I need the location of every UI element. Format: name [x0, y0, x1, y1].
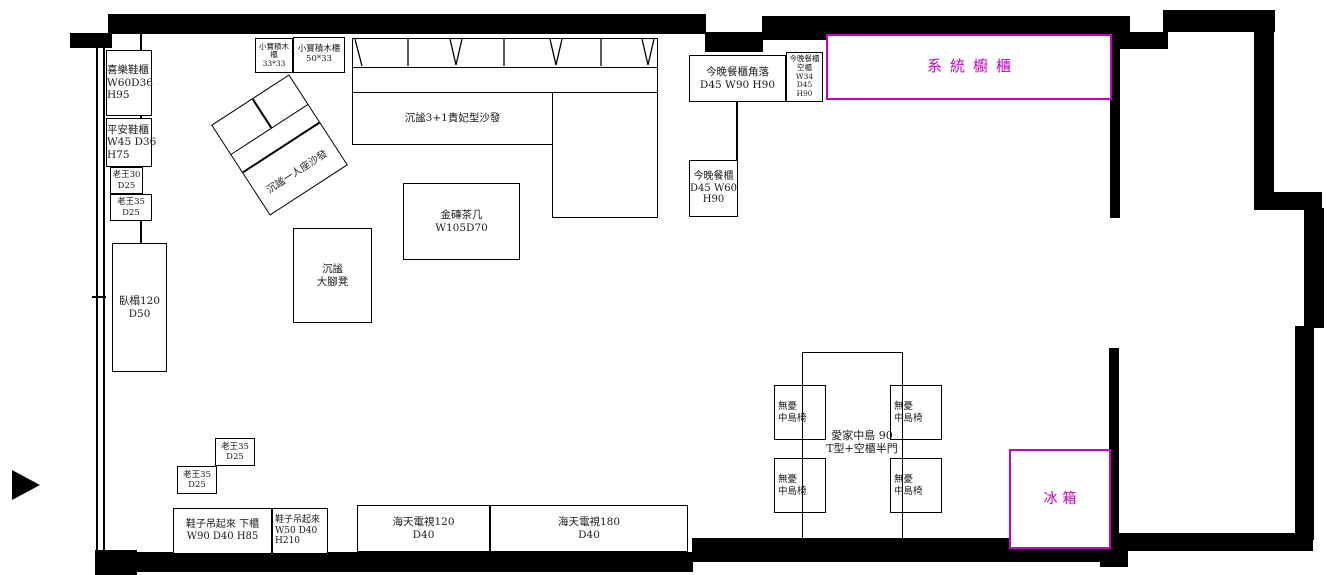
wall-bottom-right-room [1117, 533, 1313, 551]
furniture-pingan-shoe-cabinet: 平安鞋櫃 W45 D36 H75 [106, 118, 152, 167]
pointer-triangle-icon [12, 470, 40, 500]
furniture-dinner-cabinet-empty: 今晚餐櫃 空櫃 W34 D45 H90 [786, 52, 823, 102]
furniture-tv-120: 海天電視120 D40 [357, 505, 490, 552]
furniture-label: 小寶積木櫃 50*33 [298, 45, 341, 65]
furniture-label: 無憂 中島椅 [778, 401, 807, 423]
furniture-label: 無憂 中島椅 [894, 401, 923, 423]
furniture-label: 系統櫥櫃 [919, 58, 1019, 76]
furniture-single-sofa: 沉謐一人座沙發 [211, 74, 348, 215]
furniture-label: 沉謐3+1貴妃型沙發 [405, 112, 501, 124]
furniture-label: 今晚餐櫃角落 D45 W90 H90 [700, 66, 775, 91]
furniture-island-chair: 無憂 中島椅 [774, 458, 826, 513]
left-wall-tick [92, 296, 106, 298]
wall-top-a [108, 14, 706, 34]
furniture-label: 海天電視120 D40 [392, 516, 454, 541]
wall-right-upper [1254, 30, 1274, 193]
furniture-label: 無憂 中島椅 [778, 474, 807, 496]
furniture-main-sofa-back [352, 38, 658, 68]
furniture-dinner-cabinet-corner: 今晚餐櫃角落 D45 W90 H90 [689, 55, 786, 102]
furniture-label: 老王35 D25 [221, 442, 249, 462]
wall-top-left-step [70, 33, 112, 48]
wall-top-right-high [1163, 10, 1275, 32]
furniture-xile-shoe-cabinet: 喜樂鞋櫃 W60D36 H95 [106, 50, 152, 116]
furniture-label: 今晚餐櫃 D45 W60 H90 [690, 171, 737, 206]
furniture-daybed-120: 臥榻120 D50 [112, 243, 167, 372]
left-wall-line-inner [103, 33, 105, 553]
furniture-label: 沉謐 大腳凳 [317, 263, 349, 288]
furniture-label: 鞋子吊起來 W50 D40 H210 [275, 515, 320, 547]
furniture-label: 鞋子吊起來 下櫃 W90 D40 H85 [186, 519, 259, 543]
furniture-laowang-35-a: 老王35 D25 [215, 438, 255, 466]
furniture-label: 愛家中島 90 T型+空櫃半門 [826, 430, 898, 456]
furniture-system-cabinet: 系統櫥櫃 [826, 34, 1112, 100]
dinner-cabinet-connector-line [736, 100, 738, 162]
furniture-shoe-cabinet-hanging: 鞋子吊起來 W50 D40 H210 [272, 508, 328, 554]
wall-right-lower [1295, 326, 1314, 540]
furniture-label: 老王35 D25 [117, 197, 145, 217]
furniture-label: 小寶積木櫃 33*33 [256, 43, 292, 69]
wall-bottom-left [115, 552, 693, 572]
furniture-dinner-cabinet-60: 今晚餐櫃 D45 W60 H90 [689, 160, 738, 217]
furniture-label: 金磚茶几 W105D70 [435, 209, 488, 234]
floor-plan: 喜樂鞋櫃 W60D36 H95 平安鞋櫃 W45 D36 H75 老王30 D2… [0, 0, 1336, 575]
furniture-lego-cabinet-33: 小寶積木櫃 33*33 [255, 38, 293, 73]
furniture-label: 今晚餐櫃 空櫃 W34 D45 H90 [787, 55, 822, 98]
furniture-laowang-35-wall: 老王35 D25 [110, 194, 152, 221]
furniture-main-sofa-seat: 沉謐3+1貴妃型沙發 [352, 92, 553, 145]
wall-right-mid [1304, 208, 1324, 328]
sofa-back-line [231, 104, 308, 155]
furniture-label: 老王30 D25 [113, 170, 141, 190]
furniture-main-sofa-chaise [552, 92, 658, 218]
wall-top-c-low [1118, 32, 1168, 49]
furniture-label: 沉謐一人座沙發 [256, 143, 339, 202]
furniture-coffee-table: 金磚茶几 W105D70 [403, 183, 520, 260]
furniture-label: 臥榻120 D50 [119, 295, 160, 320]
furniture-laowang-35-b: 老王35 D25 [177, 466, 217, 494]
furniture-laowang-30: 老王30 D25 [110, 167, 143, 194]
furniture-fridge: 冰箱 [1009, 449, 1111, 549]
furniture-label: 無憂 中島椅 [894, 474, 923, 496]
furniture-island-chair: 無憂 中島椅 [890, 458, 942, 513]
furniture-label: 冰箱 [1039, 491, 1082, 508]
left-wall-line-outer [96, 33, 98, 553]
furniture-label: 平安鞋櫃 W45 D36 H75 [107, 124, 156, 161]
furniture-label: 老王35 D25 [183, 470, 211, 490]
furniture-main-sofa-backrest-band [352, 67, 658, 93]
island-label: 愛家中島 90 T型+空櫃半門 [797, 426, 927, 460]
sofa-cushion-divider-marks-icon [353, 39, 656, 66]
furniture-shoe-cabinet-lower: 鞋子吊起來 下櫃 W90 D40 H85 [173, 508, 272, 554]
furniture-ottoman: 沉謐 大腳凳 [293, 228, 372, 323]
wall-bottom-left-step [95, 550, 137, 575]
wall-top-recess [705, 32, 763, 52]
furniture-tv-180: 海天電視180 D40 [490, 505, 688, 552]
furniture-lego-cabinet-50: 小寶積木櫃 50*33 [293, 37, 345, 73]
sofa-back-divider-line [252, 99, 272, 128]
furniture-label: 喜樂鞋櫃 W60D36 H95 [107, 64, 153, 101]
furniture-label: 海天電視180 D40 [558, 516, 620, 541]
